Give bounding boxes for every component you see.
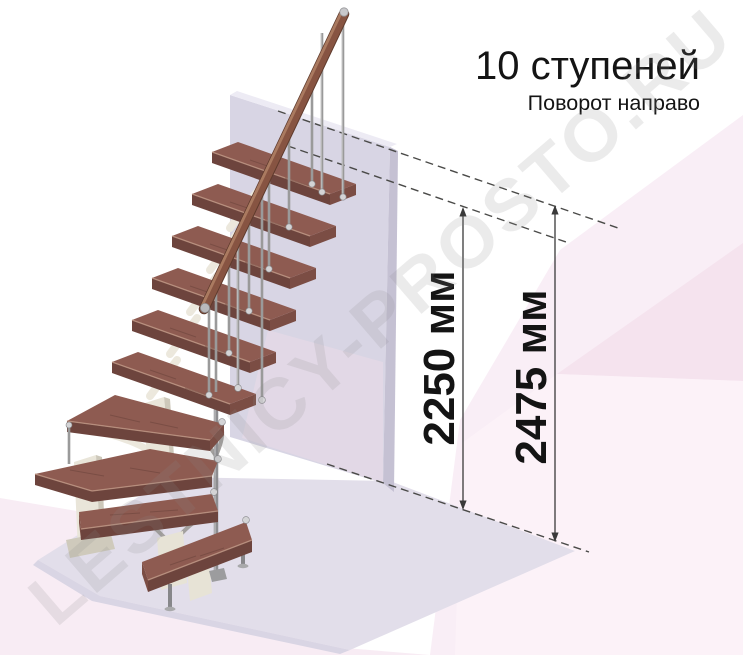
dimension-label-2475: 2475 мм xyxy=(507,289,556,464)
handrail-top-cap xyxy=(340,8,348,16)
staircase-diagram-page: 2250 мм 2475 мм 10 ступеней Поворот напр… xyxy=(0,0,743,655)
staircase-diagram: 2250 мм 2475 мм 10 ступеней Поворот напр… xyxy=(0,0,743,655)
handrail-end-cap xyxy=(200,303,209,312)
